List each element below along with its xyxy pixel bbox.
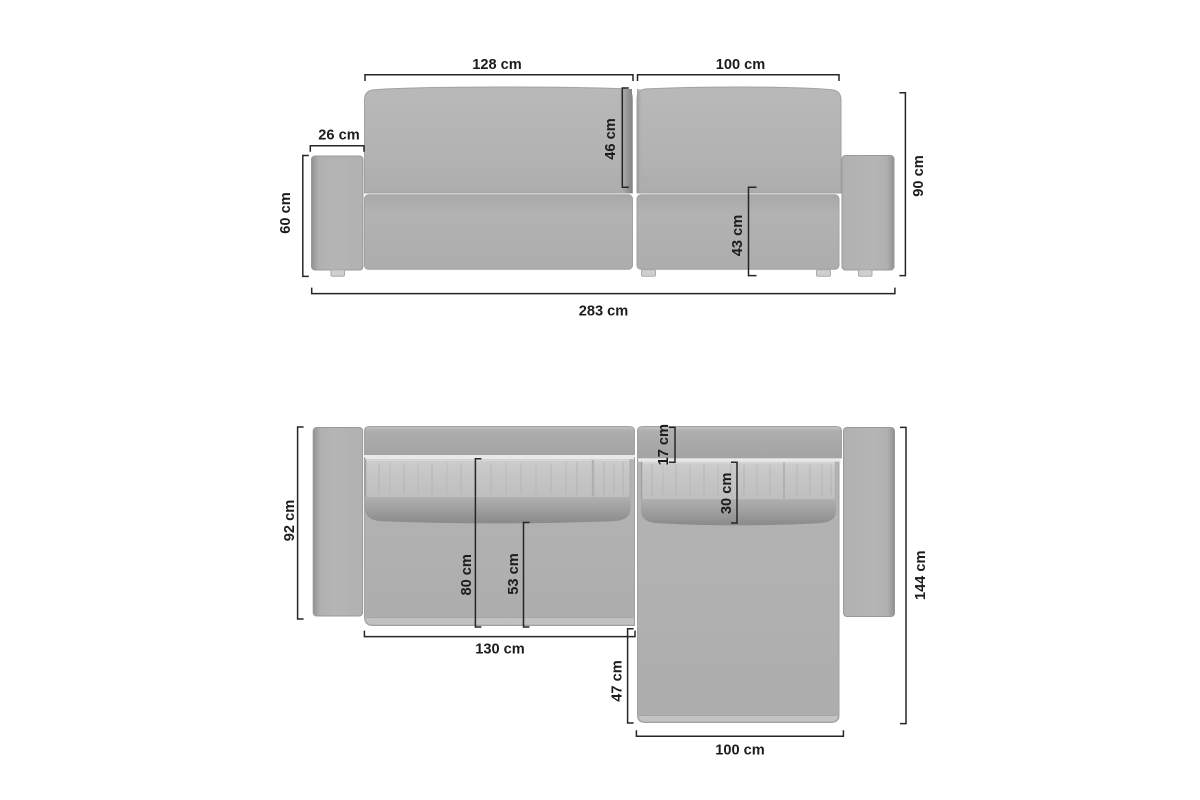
svg-text:90 cm: 90 cm xyxy=(911,155,927,196)
svg-text:60 cm: 60 cm xyxy=(278,192,294,233)
svg-text:17 cm: 17 cm xyxy=(656,424,672,465)
svg-text:128 cm: 128 cm xyxy=(472,57,522,73)
svg-text:144 cm: 144 cm xyxy=(913,551,929,601)
svg-text:92 cm: 92 cm xyxy=(282,500,298,541)
svg-text:130 cm: 130 cm xyxy=(475,642,525,658)
svg-text:283 cm: 283 cm xyxy=(579,304,629,320)
svg-text:26 cm: 26 cm xyxy=(318,128,359,144)
svg-text:43 cm: 43 cm xyxy=(730,215,746,256)
svg-text:53 cm: 53 cm xyxy=(506,553,522,594)
svg-text:100 cm: 100 cm xyxy=(716,57,766,73)
svg-text:80 cm: 80 cm xyxy=(459,554,475,595)
svg-text:100 cm: 100 cm xyxy=(715,743,765,759)
svg-text:47 cm: 47 cm xyxy=(610,660,626,701)
svg-text:46 cm: 46 cm xyxy=(603,118,619,159)
svg-text:30 cm: 30 cm xyxy=(719,473,735,514)
